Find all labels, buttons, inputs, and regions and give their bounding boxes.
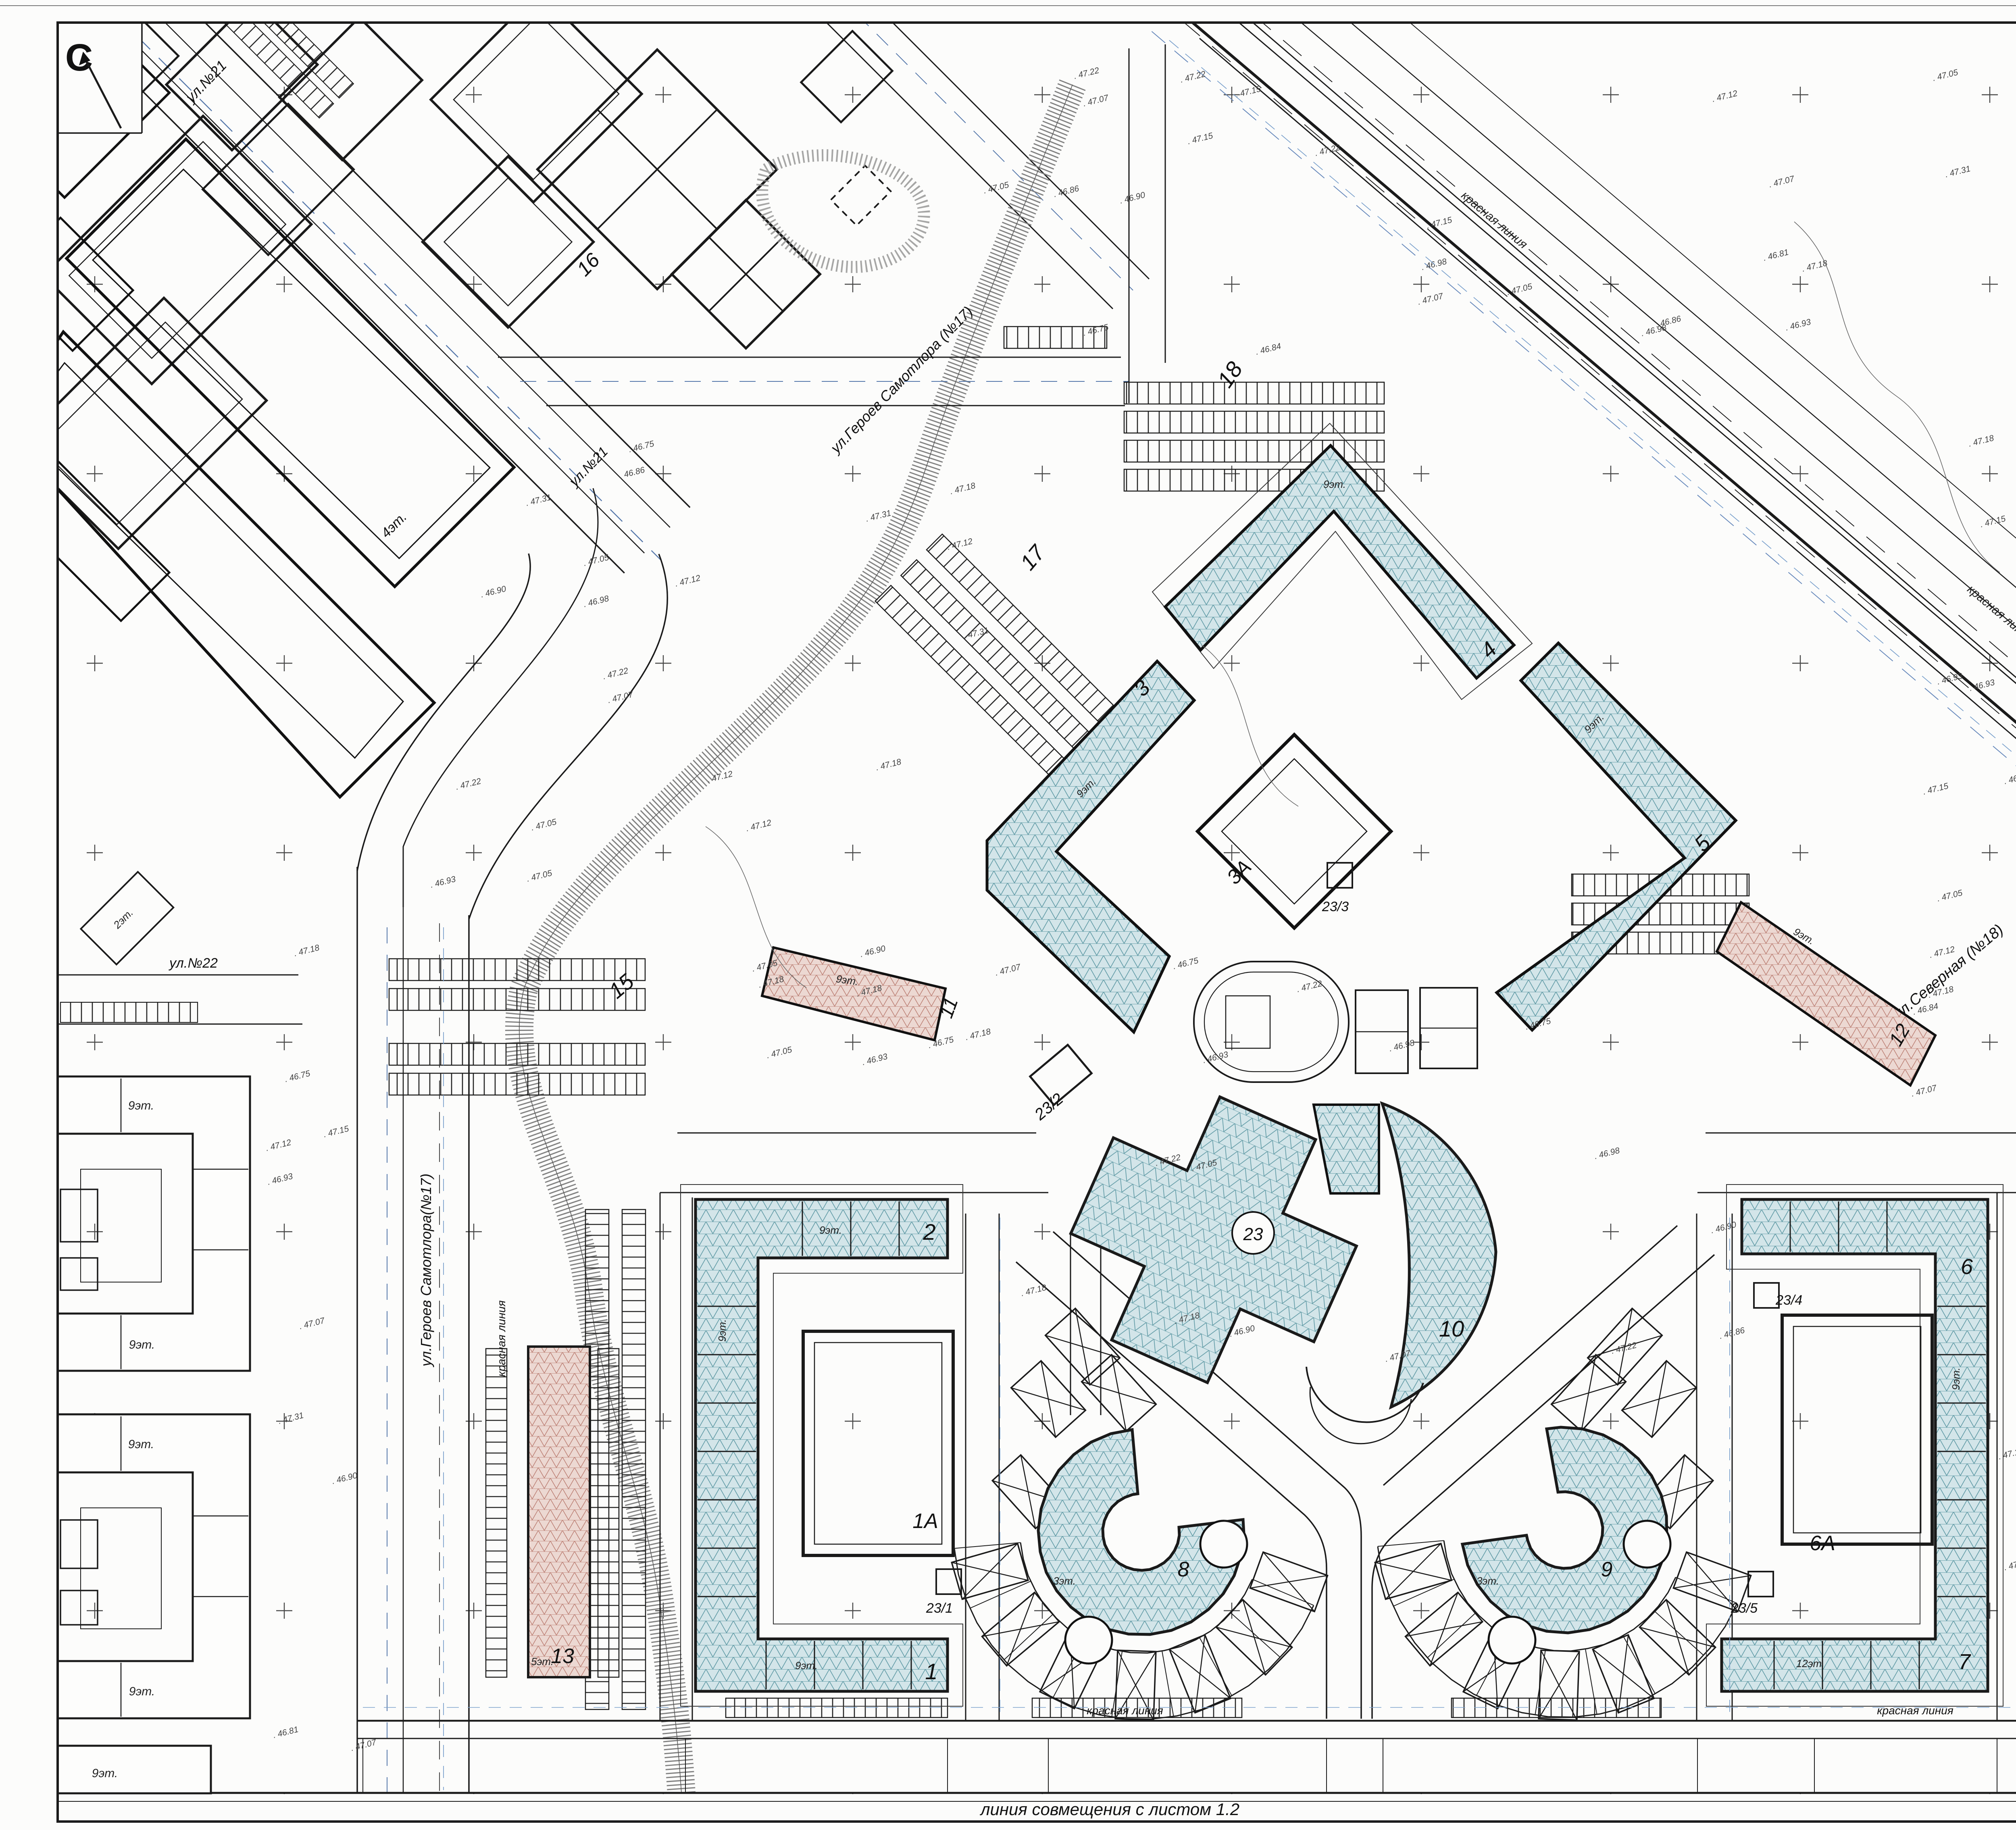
- svg-text:9эт.: 9эт.: [92, 1767, 118, 1780]
- svg-text:1: 1: [925, 1659, 937, 1684]
- svg-text:9: 9: [1601, 1558, 1613, 1581]
- svg-text:1А: 1А: [912, 1509, 938, 1533]
- svg-text:9эт.: 9эт.: [128, 1099, 154, 1112]
- svg-text:23/5: 23/5: [1731, 1601, 1758, 1616]
- svg-text:9эт.: 9эт.: [1950, 1368, 1962, 1390]
- svg-text:23/1: 23/1: [926, 1601, 953, 1616]
- svg-text:2: 2: [923, 1219, 935, 1245]
- svg-text:23/4: 23/4: [1775, 1293, 1802, 1308]
- svg-text:3эт.: 3эт.: [1477, 1575, 1499, 1587]
- svg-text:23: 23: [1243, 1224, 1263, 1244]
- svg-text:9эт.: 9эт.: [129, 1338, 155, 1351]
- svg-text:3эт.: 3эт.: [1053, 1575, 1076, 1587]
- svg-text:ул.№22: ул.№22: [169, 956, 218, 971]
- svg-text:С: С: [65, 36, 93, 79]
- svg-text:12эт.: 12эт.: [1796, 1657, 1824, 1670]
- svg-text:23/3: 23/3: [1322, 899, 1349, 914]
- svg-text:6А: 6А: [1810, 1532, 1835, 1555]
- svg-text:8: 8: [1178, 1558, 1189, 1581]
- svg-text:13: 13: [551, 1645, 574, 1668]
- svg-text:9эт.: 9эт.: [819, 1224, 842, 1236]
- svg-text:9эт.: 9эт.: [1323, 478, 1346, 490]
- svg-text:6: 6: [1961, 1255, 1973, 1279]
- svg-text:7: 7: [1958, 1650, 1971, 1674]
- svg-text:9эт.: 9эт.: [716, 1319, 728, 1342]
- svg-text:ул.Героев Самотлора(№17): ул.Героев Самотлора(№17): [418, 1174, 434, 1368]
- svg-text:10: 10: [1439, 1316, 1464, 1341]
- svg-text:линия совмещения с листом 1.2: линия совмещения с листом 1.2: [979, 1800, 1239, 1819]
- svg-text:5эт.: 5эт.: [531, 1655, 554, 1668]
- svg-text:9эт.: 9эт.: [128, 1438, 154, 1451]
- svg-text:9эт.: 9эт.: [129, 1685, 155, 1698]
- svg-text:9эт.: 9эт.: [795, 1659, 818, 1672]
